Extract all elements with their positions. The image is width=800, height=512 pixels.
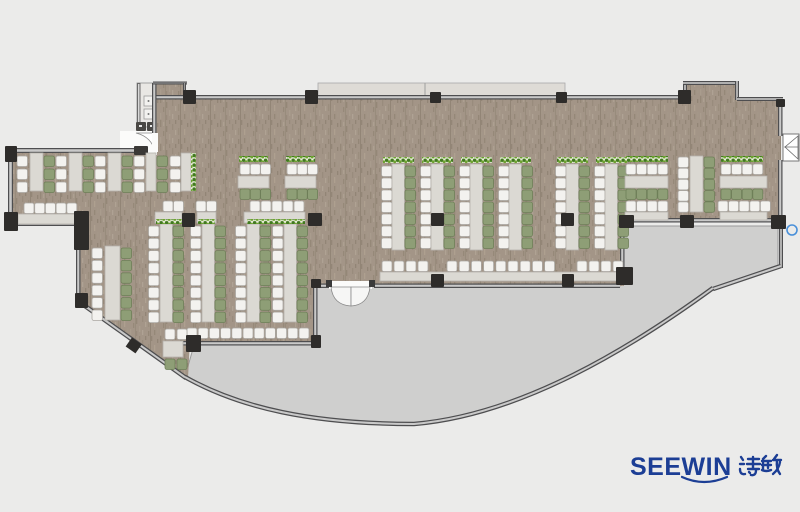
svg-text:SEEWIN: SEEWIN: [630, 453, 732, 481]
